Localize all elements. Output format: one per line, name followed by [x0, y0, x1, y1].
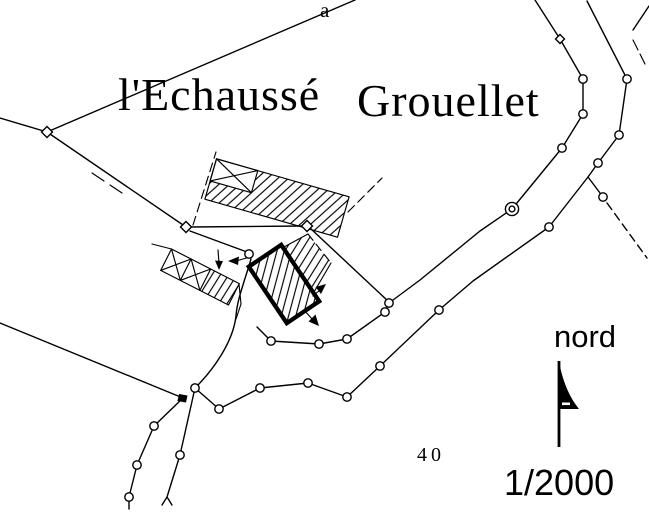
- scale-label: 1/2000: [504, 462, 614, 503]
- arrow-down: [215, 250, 223, 270]
- parcel-dashed-east: [348, 178, 382, 212]
- label-hamlet-east: Grouellet: [357, 75, 540, 126]
- diamond-vertex: [42, 127, 53, 138]
- buildings: [152, 159, 349, 323]
- cadastral-map-page: l'Echaussé Grouellet a 40 nord 1/2000: [0, 0, 649, 512]
- building-shed: [152, 244, 239, 305]
- cadastral-map: l'Echaussé Grouellet a 40 nord 1/2000: [0, 0, 649, 512]
- label-hamlet-west: l'Echaussé: [118, 69, 320, 120]
- monument-point: [505, 202, 518, 215]
- lower-road-left-edge: [129, 398, 183, 509]
- shed-hatch: [200, 269, 239, 305]
- corner-tick-marks: [633, 40, 645, 64]
- building-barn: [205, 159, 349, 237]
- label-parcel-number: 40: [417, 444, 445, 466]
- north-arrow: nord: [554, 319, 616, 447]
- arrow-southeast: [304, 310, 319, 326]
- corner-line-fragment: [633, 6, 649, 30]
- label-parcel-letter: a: [320, 0, 330, 22]
- north-arrow-pennant: [559, 361, 579, 409]
- north-label: nord: [554, 319, 616, 354]
- filled-junction-point: [178, 394, 188, 403]
- shed-fence-extension: [152, 244, 172, 249]
- track-tick-marks: [92, 173, 122, 193]
- boundary-west-long: [0, 323, 183, 398]
- lower-road-right-edge: [162, 388, 195, 505]
- branch-line-dashed: [607, 203, 647, 258]
- diamond-vertex: [556, 35, 565, 44]
- pennant-notch: [562, 403, 570, 406]
